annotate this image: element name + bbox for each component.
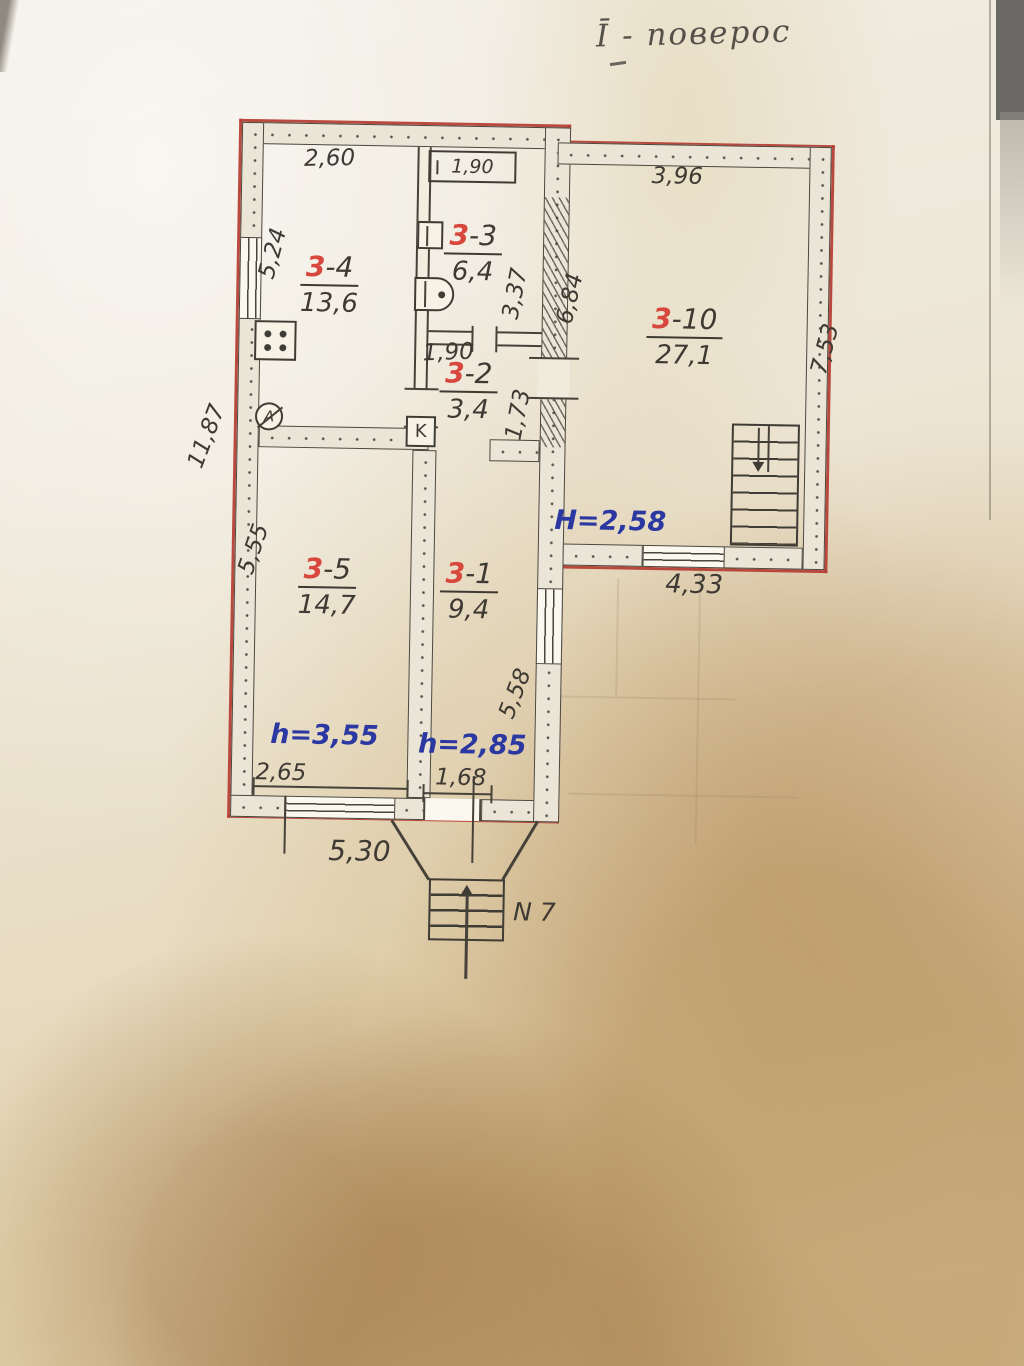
dim-2-65: 2,65: [255, 759, 307, 786]
room-code: 3-3: [444, 218, 502, 255]
basin-drain-dot: [438, 291, 445, 298]
wall-segment: [393, 798, 425, 821]
stairs-divider-line: [767, 426, 770, 472]
photographed-floor-plan-sheet: Ī - поверос: [0, 0, 1024, 1366]
bleed-through-line: [568, 793, 798, 799]
dim-extension-line: [283, 796, 286, 854]
dim-line: [253, 785, 409, 790]
stairs-arrow-head: [752, 462, 764, 472]
dim-tick: [490, 785, 492, 803]
dim-tick: [436, 160, 438, 174]
room-area: 14,7: [256, 589, 397, 621]
bleed-through-line: [560, 695, 735, 700]
porch-line: [391, 820, 430, 881]
room-label-3-5: 3-5 14,7: [256, 551, 397, 621]
bathtub: 1,90: [428, 150, 517, 184]
entrance-arrow-line: [464, 893, 468, 979]
stove-icon: [254, 320, 297, 361]
dim-11-87: 11,87: [183, 401, 231, 472]
wall-stub: [489, 439, 539, 462]
window: [642, 545, 724, 568]
floor-plan: 1,90 A K N 7: [0, 0, 1024, 1030]
door-opening: [537, 359, 570, 400]
interior-stairs: [730, 423, 800, 546]
room-code: 3-10: [647, 302, 723, 339]
bleed-through-line: [695, 570, 701, 845]
dim-1-90-hall: 1,90: [422, 339, 474, 367]
room-area: 13,6: [259, 287, 400, 319]
wall-segment: [230, 122, 264, 817]
dim-tick: [406, 780, 408, 798]
stairs-arrow-line: [757, 428, 760, 464]
porch-line: [502, 821, 539, 881]
room-code: 3-1: [440, 556, 498, 593]
wall-segment: [242, 122, 558, 150]
door-jamb-line: [495, 326, 497, 352]
bleed-through-line: [615, 578, 619, 696]
partition-wall: [497, 331, 541, 347]
entrance-arrow-head: [461, 885, 473, 895]
entrance-stairs: [428, 878, 505, 941]
height-room-3-1: h=2,85: [418, 729, 527, 762]
entrance-stairs-label: N 7: [513, 897, 556, 927]
window: [285, 796, 395, 820]
wall-segment: [562, 544, 642, 567]
height-room-3-5: h=3,55: [270, 719, 379, 752]
height-hall: H=2,58: [554, 505, 666, 538]
dim-5-30: 5,30: [328, 834, 391, 868]
dim-line: [422, 792, 492, 795]
dim-4-33: 4,33: [665, 569, 723, 600]
dim-5-58: 5,58: [494, 665, 537, 722]
room-code: 3-4: [301, 250, 359, 287]
room-area: 27,1: [614, 339, 755, 371]
dim-bathtub: 1,90: [451, 156, 494, 179]
wall-segment: [230, 795, 285, 818]
dim-tick: [422, 784, 424, 802]
wall-segment: [723, 546, 802, 569]
room-label-3-10: 3-10 27,1: [614, 301, 755, 371]
dim-1-68: 1,68: [435, 764, 487, 791]
room-code: 3-5: [298, 552, 356, 589]
window: [536, 588, 563, 664]
dim-2-60: 2,60: [304, 145, 356, 172]
dim-3-96: 3,96: [651, 163, 703, 190]
room-label-3-1: 3-1 9,4: [398, 556, 539, 626]
room-area: 9,4: [398, 594, 539, 626]
wall-segment: [259, 425, 429, 450]
